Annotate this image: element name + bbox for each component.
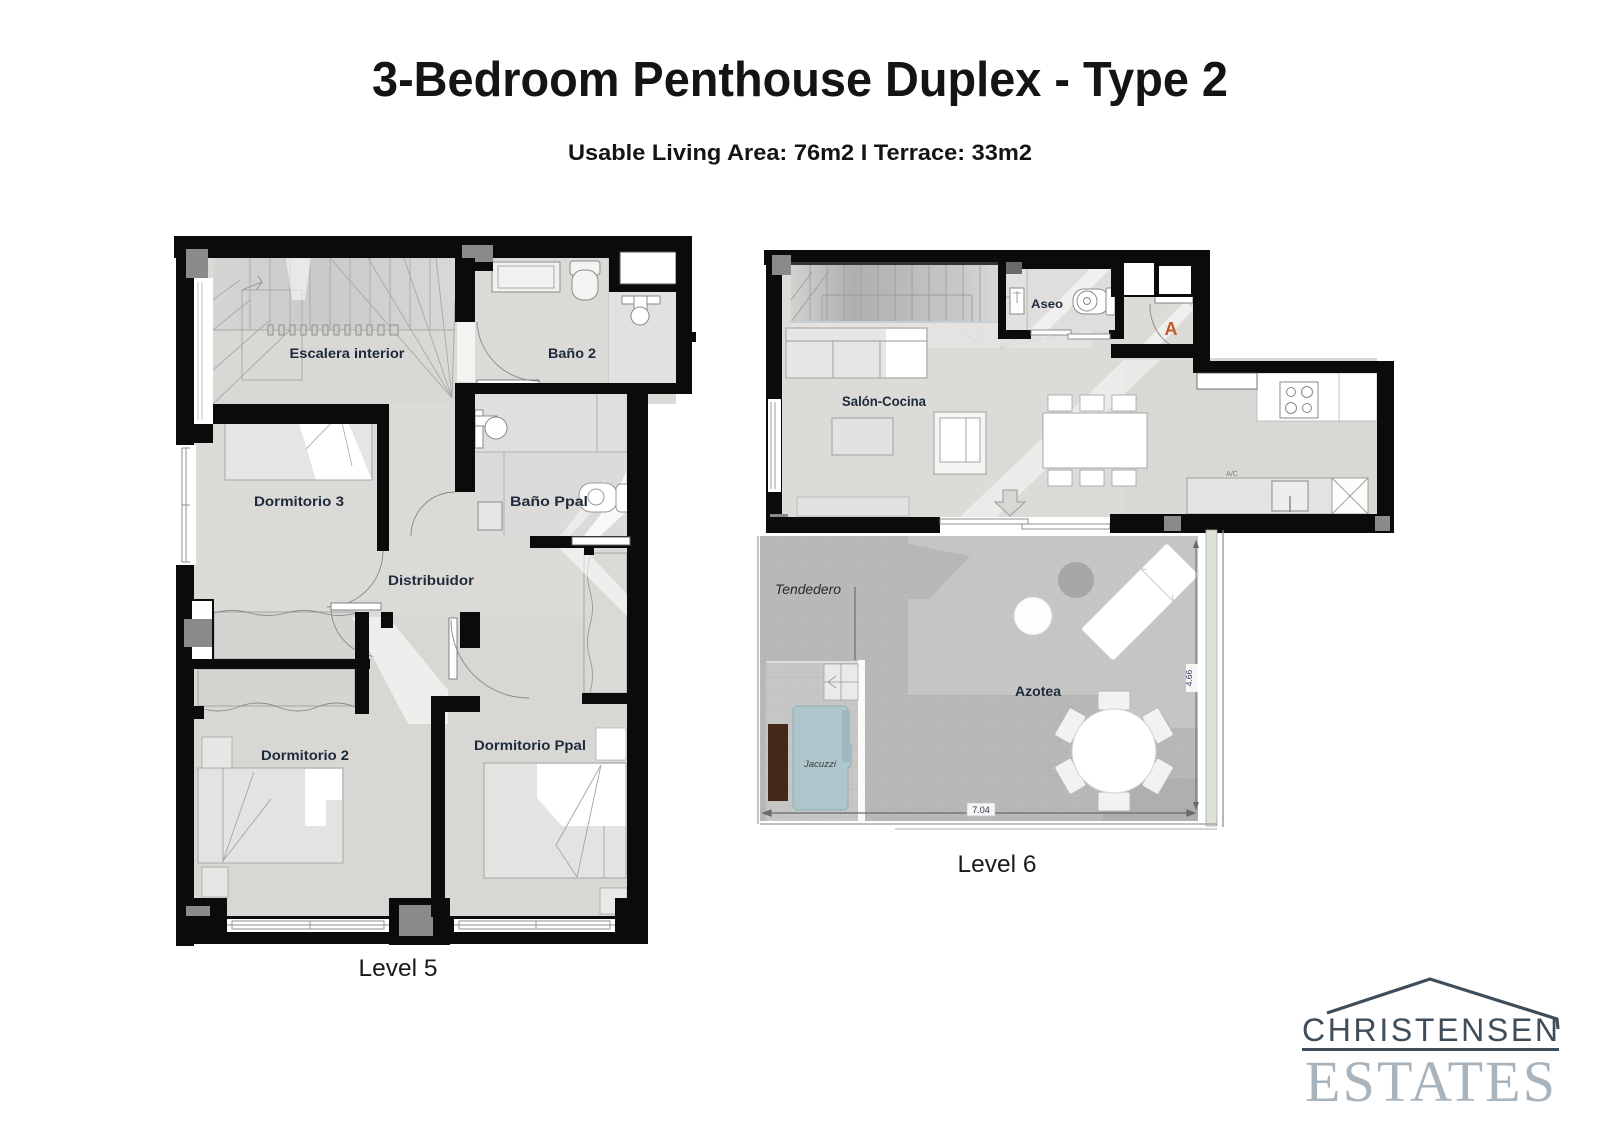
svg-text:Baño Ppal: Baño Ppal xyxy=(510,494,588,509)
svg-text:Tendedero: Tendedero xyxy=(775,581,841,597)
svg-text:Escalera interior: Escalera interior xyxy=(290,346,406,361)
svg-text:CHRISTENSEN: CHRISTENSEN xyxy=(1302,1012,1558,1048)
svg-text:A/C: A/C xyxy=(1226,471,1238,478)
svg-text:Level 5: Level 5 xyxy=(358,955,437,982)
svg-text:7.04: 7.04 xyxy=(972,805,990,815)
svg-text:A: A xyxy=(1165,319,1178,339)
svg-text:Azotea: Azotea xyxy=(1015,683,1061,699)
svg-text:Aseo: Aseo xyxy=(1031,297,1063,311)
svg-text:Distribuidor: Distribuidor xyxy=(388,573,475,588)
svg-text:Dormitorio Ppal: Dormitorio Ppal xyxy=(474,738,586,753)
svg-text:Dormitorio 2: Dormitorio 2 xyxy=(261,748,349,763)
svg-text:4.66: 4.66 xyxy=(1184,669,1194,686)
svg-text:Baño 2: Baño 2 xyxy=(548,346,596,361)
svg-text:Usable Living Area: 76m2 I Ter: Usable Living Area: 76m2 I Terrace: 33m2 xyxy=(568,140,1032,165)
svg-text:3-Bedroom Penthouse Duplex - T: 3-Bedroom Penthouse Duplex - Type 2 xyxy=(372,53,1228,107)
svg-text:Dormitorio 3: Dormitorio 3 xyxy=(254,494,345,509)
svg-text:Level 6: Level 6 xyxy=(957,851,1036,878)
svg-text:ESTATES: ESTATES xyxy=(1305,1049,1555,1114)
svg-text:Salón-Cocina: Salón-Cocina xyxy=(842,393,926,409)
svg-text:Jacuzzi: Jacuzzi xyxy=(803,759,837,769)
